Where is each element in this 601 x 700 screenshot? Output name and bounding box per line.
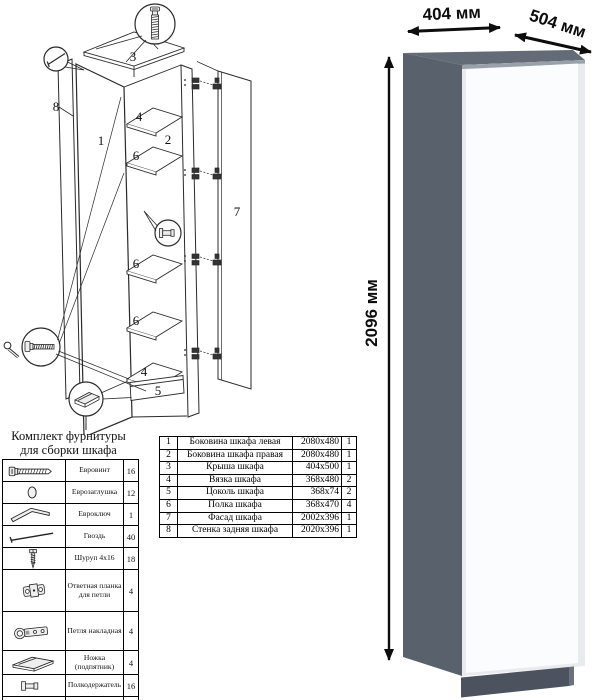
shelf-pin-icon	[3, 675, 66, 697]
hardware-kit-title: Комплект фурнитуры для сборки шкафа	[2, 429, 135, 457]
hardware-item-qty: 4	[124, 651, 139, 675]
parts-row: 8Стенка задняя шкафа2020x3961	[160, 525, 357, 538]
hardware-item-qty: 16	[124, 460, 139, 482]
carcass-bottom-edge	[132, 416, 187, 417]
part-name: Вязка шкафа	[178, 474, 293, 487]
euro-key-icon	[3, 504, 66, 526]
hardware-row: Ножка (подпятник)4	[3, 651, 139, 675]
label-part7: 7	[234, 204, 241, 219]
part-size: 368x480	[293, 474, 342, 487]
parts-row: 1Боковина шкафа левая2080x4801	[160, 437, 357, 450]
part-size: 404x500	[293, 462, 342, 475]
hardware-item-qty: 1	[124, 504, 139, 526]
carcass-back-edge	[124, 65, 181, 87]
hardware-item-name: Полкодержатель	[66, 675, 124, 697]
hardware-item-name: Евроключ	[66, 504, 124, 526]
parts-row: 5Цоколь шкафа368x742	[160, 487, 357, 500]
part-name: Крыша шкафа	[178, 462, 293, 475]
hardware-item-name: Гвоздь	[66, 526, 124, 548]
hardware-row: Шуруп 4x1618	[3, 548, 139, 570]
part-size: 2080x480	[293, 449, 342, 462]
part-size: 368x470	[293, 499, 342, 512]
parts-row: 3Крыша шкафа404x5001	[160, 462, 357, 475]
label-part8: 8	[53, 99, 60, 114]
hardware-item-name: Толкатель (пуш)	[66, 697, 124, 700]
callout-nail	[44, 47, 84, 71]
hardware-table: Евровинт16Еврозаглушка12Евроключ1Гвоздь4…	[2, 459, 139, 700]
hardware-item-qty: 18	[124, 548, 139, 570]
label-part6-c: 6	[133, 313, 140, 328]
foot-icon	[3, 651, 66, 675]
hardware-item-name: Шуруп 4x16	[66, 548, 124, 570]
part-name: Цоколь шкафа	[178, 487, 293, 500]
part-name: Стенка задняя шкафа	[178, 525, 293, 538]
cabinet-side-panel	[403, 53, 462, 676]
hardware-item-name: Ножка (подпятник)	[66, 651, 124, 675]
part-number: 1	[160, 437, 178, 450]
hardware-kit-panel: Комплект фурнитуры для сборки шкафа Евро…	[2, 429, 142, 700]
hardware-row: Еврозаглушка12	[3, 482, 139, 504]
width-dimension-label: 404 мм	[422, 3, 481, 25]
cabinet-plinth-end-cap	[569, 666, 574, 686]
width-arrow	[408, 28, 500, 32]
hardware-row: Полкодержатель16	[3, 675, 139, 697]
hardware-item-qty: 4	[124, 612, 139, 651]
hardware-item-qty: 12	[124, 482, 139, 504]
part-number: 2	[160, 449, 178, 462]
height-dimension-label: 2096 мм	[362, 279, 381, 347]
hardware-row: Евровинт16	[3, 460, 139, 482]
hardware-row: Толкатель (пуш)1	[3, 697, 139, 700]
label-part6-b: 6	[133, 256, 140, 271]
euro-key-icon	[4, 342, 19, 358]
part-number: 7	[160, 512, 178, 525]
left-side-panel	[76, 64, 132, 435]
part-name: Боковина шкафа правая	[178, 449, 293, 462]
hinge-icon	[3, 612, 66, 651]
hardware-item-name: Евровинт	[66, 460, 124, 482]
parts-row: 2Боковина шкафа правая2080x4801	[160, 449, 357, 462]
hardware-item-name: Петля накладная	[66, 612, 124, 651]
euro-cap-icon	[3, 482, 66, 504]
label-part4-bottom: 4	[141, 364, 148, 379]
cabinet-door	[466, 64, 578, 674]
part-number: 8	[160, 525, 178, 538]
part-size: 2020x396	[293, 525, 342, 538]
part-size: 2002x396	[293, 512, 342, 525]
hardware-item-qty: 16	[124, 675, 139, 697]
hardware-row: Петля накладная4	[3, 612, 139, 651]
label-part4-top: 4	[136, 109, 143, 124]
door-panel	[197, 62, 251, 390]
exploded-diagram: 8 1 2 3 4 6 6 6 4 5 7	[0, 0, 380, 435]
hardware-item-qty: 1	[124, 697, 139, 700]
hardware-row: Гвоздь40	[3, 526, 139, 548]
part-number: 5	[160, 487, 178, 500]
callout-shelf-pin	[144, 211, 181, 246]
hardware-row: Ответная планка для петли4	[3, 570, 139, 612]
parts-row: 4Вязка шкафа368x4802	[160, 474, 357, 487]
hardware-row: Евроключ1	[3, 504, 139, 526]
part-number: 3	[160, 462, 178, 475]
euro-screw-icon	[3, 460, 66, 482]
parts-panel: 1Боковина шкафа левая2080x48012Боковина …	[159, 436, 357, 538]
part-number: 6	[160, 499, 178, 512]
label-part5: 5	[155, 383, 162, 398]
part-size: 2080x480	[293, 437, 342, 450]
parts-row: 6Полка шкафа368x4704	[160, 499, 357, 512]
hardware-item-name: Ответная планка для петли	[66, 570, 124, 612]
part-name: Боковина шкафа левая	[178, 437, 293, 450]
parts-table-body: 1Боковина шкафа левая2080x48012Боковина …	[160, 437, 357, 538]
part-size: 368x74	[293, 487, 342, 500]
hardware-item-qty: 40	[124, 526, 139, 548]
label-part6-a: 6	[133, 148, 140, 163]
part-number: 4	[160, 474, 178, 487]
screw-icon	[3, 548, 66, 570]
right-side-panel	[181, 65, 199, 417]
assembly-sheet: 8 1 2 3 4 6 6 6 4 5 7 Комплект фурнитуры…	[0, 0, 601, 700]
cabinet-render: 404 мм 504 мм 2096 мм	[350, 0, 601, 700]
hinge-plate-icon	[3, 570, 66, 612]
label-part2: 2	[165, 132, 172, 147]
hardware-item-qty: 4	[124, 570, 139, 612]
hardware-kit-title-line1: Комплект фурнитуры	[2, 429, 135, 443]
hardware-item-name: Еврозаглушка	[66, 482, 124, 504]
nail-icon	[3, 526, 66, 548]
hardware-table-body: Евровинт16Еврозаглушка12Евроключ1Гвоздь4…	[3, 460, 139, 700]
label-part1: 1	[98, 133, 105, 148]
part-name: Полка шкафа	[178, 499, 293, 512]
part-name: Фасад шкафа	[178, 512, 293, 525]
parts-row: 7Фасад шкафа2002x3961	[160, 512, 357, 525]
push-rod-icon	[3, 697, 66, 700]
parts-table: 1Боковина шкафа левая2080x48012Боковина …	[159, 436, 357, 538]
depth-dimension-label: 504 мм	[527, 6, 588, 42]
label-part3: 3	[130, 49, 137, 64]
hardware-kit-title-line2: для сборки шкафа	[2, 443, 135, 457]
